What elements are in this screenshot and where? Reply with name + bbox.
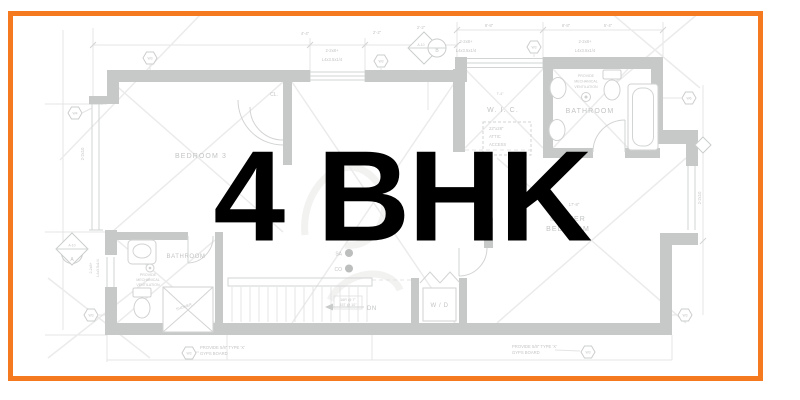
dim-label: 5'-4" (604, 23, 613, 28)
wall-marker-w3: W3 (581, 346, 595, 358)
gyps-note-line: PROVIDE 5/8" TYPE 'X' (512, 344, 557, 349)
gyps-note-line: GYPS BOARD (512, 350, 540, 355)
beam-label: L4x3.5x1/4 (322, 57, 343, 62)
svg-text:W3: W3 (186, 352, 191, 356)
staircase: 16R @ 7" 15T @ 10" DN (228, 278, 377, 322)
vent-note-line: MECHANICAL (574, 80, 598, 84)
plan-type-title: 4 BHK (2, 133, 800, 262)
stairs-down-label: DN (367, 306, 377, 312)
dim-label: 8'-8" (485, 23, 494, 28)
beam-label: 2-2x8+ (326, 48, 339, 53)
dim-label: 7'-4" (496, 92, 504, 96)
wall-marker-w3: W3 (143, 52, 157, 70)
dim-label: 2'-2" (417, 25, 426, 30)
beam-label: L4x3.5x1/4 (456, 48, 477, 53)
toilet-tank (603, 70, 621, 79)
toilet-tank (133, 288, 151, 297)
dim-label: 2'-2" (373, 30, 382, 35)
down-arrow-head (325, 304, 333, 311)
floor-plan-flyer: 16R @ 7" 15T @ 10" DN SH (0, 0, 800, 400)
vent-note-line: PROVIDE (140, 273, 157, 277)
vent-note-line: VENTILATION (574, 85, 598, 89)
wic-label: W. I. C. (487, 107, 519, 114)
svg-text:W6: W6 (686, 97, 691, 101)
wall-marker-w3: W3 (374, 55, 388, 70)
svg-text:W4: W4 (72, 112, 77, 116)
toilet-bowl (134, 298, 150, 318)
washer-dryer-label: W / D (431, 303, 449, 309)
svg-text:W3: W3 (531, 46, 536, 50)
svg-text:W3: W3 (378, 60, 383, 64)
vent-note-line: PROVIDE (578, 74, 595, 78)
gyps-note-line: GYPS BOARD (200, 351, 228, 356)
gyps-note-line: PROVIDE 5/8" TYPE 'X' (200, 345, 245, 350)
vent-note-line: VENTILATION (136, 283, 160, 287)
vent-note-line: MECHANICAL (136, 278, 160, 282)
section-marker-b: A-10 B (408, 32, 446, 64)
gypsum-notes: PROVIDE 5/8" TYPE 'X' GYPS BOARD PROVIDE… (196, 344, 580, 356)
svg-text:A-10: A-10 (417, 43, 424, 47)
beam-label: 2-2x8+ (579, 39, 592, 44)
stair-riser-note: 16R @ 7" (340, 298, 356, 302)
wall-marker-w3: W3 (182, 347, 196, 359)
wall-marker-w6: W6 (663, 92, 696, 104)
svg-text:W3: W3 (88, 314, 93, 318)
beam-label: L4x3.5x1/4 (96, 259, 100, 277)
beam-label: L4x3.5x1/4 (575, 48, 596, 53)
beam-label: 2-2x8+ (460, 39, 473, 44)
svg-text:W3: W3 (147, 57, 152, 61)
svg-text:W3: W3 (682, 314, 687, 318)
dim-label: 8'-8" (562, 23, 571, 28)
wall-marker-w3: W3 (672, 309, 692, 321)
bathroom-top-label: BATHROOM (566, 108, 615, 115)
dim-label: 4'-4" (301, 31, 310, 36)
wall-marker-w4: W4 (68, 107, 92, 119)
closet-label: CL. (270, 92, 278, 98)
wall-marker-w3: W3 (84, 309, 105, 321)
beam-label: 2-2x8+ (89, 262, 93, 273)
stair-tread-note: 15T @ 10" (339, 303, 357, 307)
svg-text:W3: W3 (585, 351, 590, 355)
toilet-bowl (604, 80, 620, 100)
sink (550, 78, 566, 99)
wall-marker-w3: W3 (527, 41, 541, 57)
